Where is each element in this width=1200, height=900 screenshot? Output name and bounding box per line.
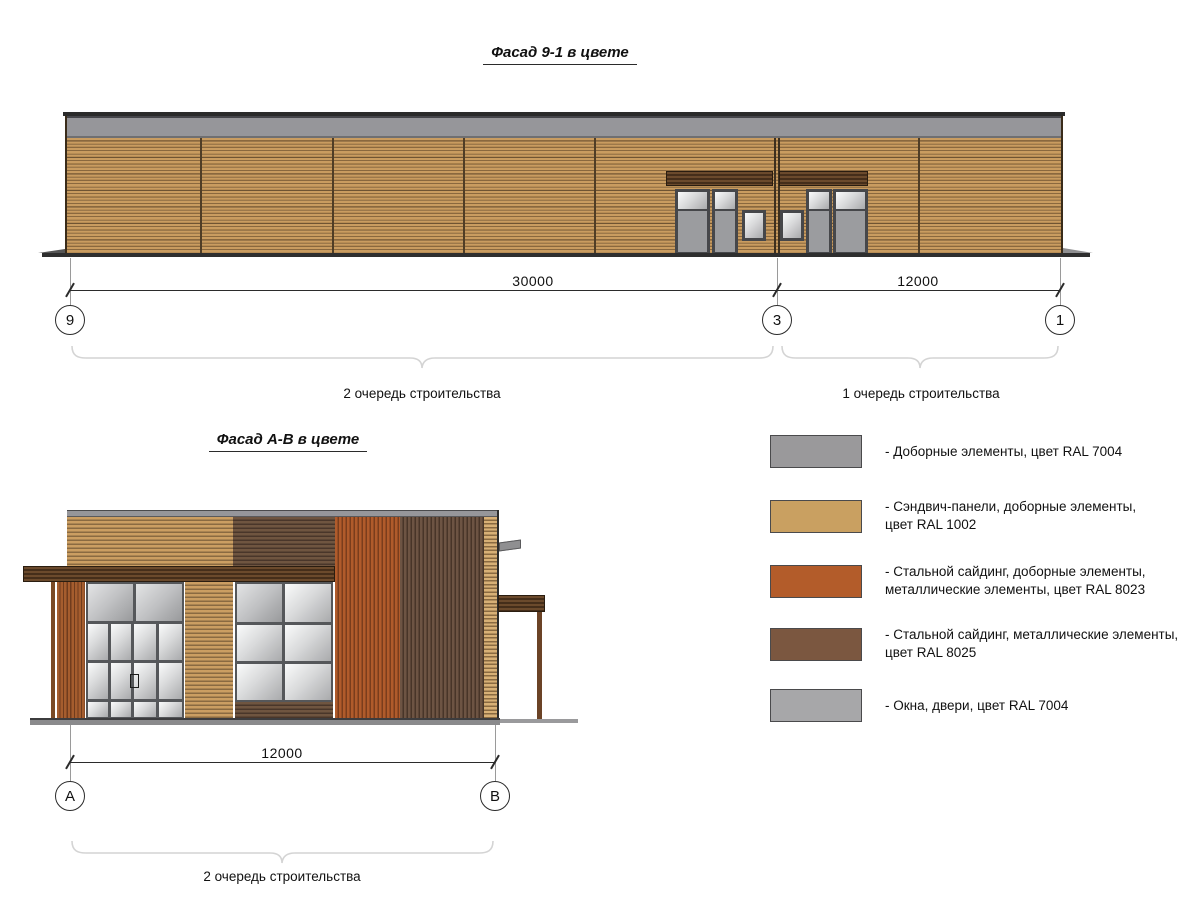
grid-marker-3: 3 — [762, 305, 792, 335]
legend-label: - Доборные элементы, цвет RAL 7004 — [885, 443, 1122, 461]
phase-brace-left — [70, 345, 775, 371]
parapet-band-ral7004 — [65, 116, 1063, 138]
upper-tan-siding — [67, 517, 233, 566]
building-left-edge — [65, 116, 67, 255]
legend-item-ral7004: - Доборные элементы, цвет RAL 7004 — [770, 435, 1122, 468]
dimension-value-12000: 12000 — [838, 273, 998, 289]
grid-extension-line — [495, 725, 496, 781]
ground-line — [42, 253, 1090, 257]
corner-tan-strip — [484, 517, 497, 719]
legend-item-ral8023: - Стальной сайдинг, доборные элементы, м… — [770, 563, 1146, 599]
legend-swatch — [770, 435, 862, 468]
grid-marker-b: В — [480, 781, 510, 811]
phase-2-label: 2 очередь строительства — [272, 386, 572, 401]
panel-joint — [332, 138, 334, 255]
legend-label: - Сэндвич-панели, доборные элементы, цве… — [885, 498, 1136, 534]
window-sill-siding — [235, 702, 333, 719]
legend-item-ral1002: - Сэндвич-панели, доборные элементы, цве… — [770, 498, 1136, 534]
facade-9-1-title: Фасад 9-1 в цвете — [420, 44, 700, 65]
panel-joint — [200, 138, 202, 255]
building-right-edge — [497, 510, 499, 719]
entrance-window — [780, 210, 804, 241]
grid-marker-9: 9 — [55, 305, 85, 335]
side-canopy-post — [537, 612, 542, 719]
entrance-canopy — [23, 566, 335, 582]
grid-extension-line — [777, 258, 778, 305]
grid-marker-a: А — [55, 781, 85, 811]
entrance-door — [712, 189, 738, 255]
legend-label: - Стальной сайдинг, металлические элемен… — [885, 626, 1178, 662]
entrance-canopy-left — [666, 171, 773, 186]
grid-extension-line — [70, 725, 71, 781]
phase-brace-right — [780, 345, 1060, 371]
entrance-canopy-right — [779, 171, 868, 186]
grid-extension-line — [1060, 258, 1061, 305]
legend-swatch — [770, 689, 862, 722]
legend-label: - Окна, двери, цвет RAL 7004 — [885, 697, 1068, 715]
ground-line — [30, 718, 500, 725]
entrance-door — [833, 189, 868, 255]
ground-ramp-right — [1063, 248, 1093, 253]
phase-brace — [70, 840, 495, 866]
dimension-line — [70, 762, 495, 763]
drawing-sheet: Фасад 9-1 в цвете — [0, 0, 1200, 900]
striped-corner-column — [57, 582, 85, 718]
panel-joint — [594, 138, 596, 255]
sandwich-panel-siding — [65, 138, 1063, 255]
phase-1-label: 1 очередь строительства — [771, 386, 1071, 401]
steel-siding-ral8023 — [335, 517, 400, 719]
phase-2-label: 2 очередь строительства — [132, 869, 432, 884]
entrance-door — [806, 189, 832, 255]
phase-joint-line — [774, 138, 776, 255]
glazed-wall — [86, 582, 184, 719]
dimension-line — [70, 290, 1060, 291]
parapet-strip — [67, 510, 499, 517]
entrance-window — [742, 210, 766, 241]
legend-swatch — [770, 565, 862, 598]
legend-item-ral8025: - Стальной сайдинг, металлические элемен… — [770, 626, 1178, 662]
gutter-bracket — [499, 539, 521, 551]
door-handle — [130, 674, 139, 688]
building-right-edge — [1061, 116, 1063, 255]
grid-extension-line — [70, 258, 71, 305]
side-canopy — [498, 595, 545, 612]
legend-item-windows-doors: - Окна, двери, цвет RAL 7004 — [770, 689, 1068, 722]
legend-label: - Стальной сайдинг, доборные элементы, м… — [885, 563, 1146, 599]
facade-a-b-title: Фасад А-В в цвете — [148, 431, 428, 452]
window-grid — [235, 582, 333, 702]
mid-tan-siding — [185, 582, 233, 719]
canopy-post — [51, 582, 55, 718]
dimension-value-30000: 30000 — [453, 273, 613, 289]
legend-swatch — [770, 500, 862, 533]
ground-extension — [500, 719, 578, 723]
panel-joint — [463, 138, 465, 255]
legend-swatch — [770, 628, 862, 661]
dimension-value-12000: 12000 — [202, 745, 362, 761]
steel-siding-ral8025 — [400, 517, 484, 719]
entrance-door — [675, 189, 710, 255]
grid-marker-1: 1 — [1045, 305, 1075, 335]
panel-joint — [918, 138, 920, 255]
